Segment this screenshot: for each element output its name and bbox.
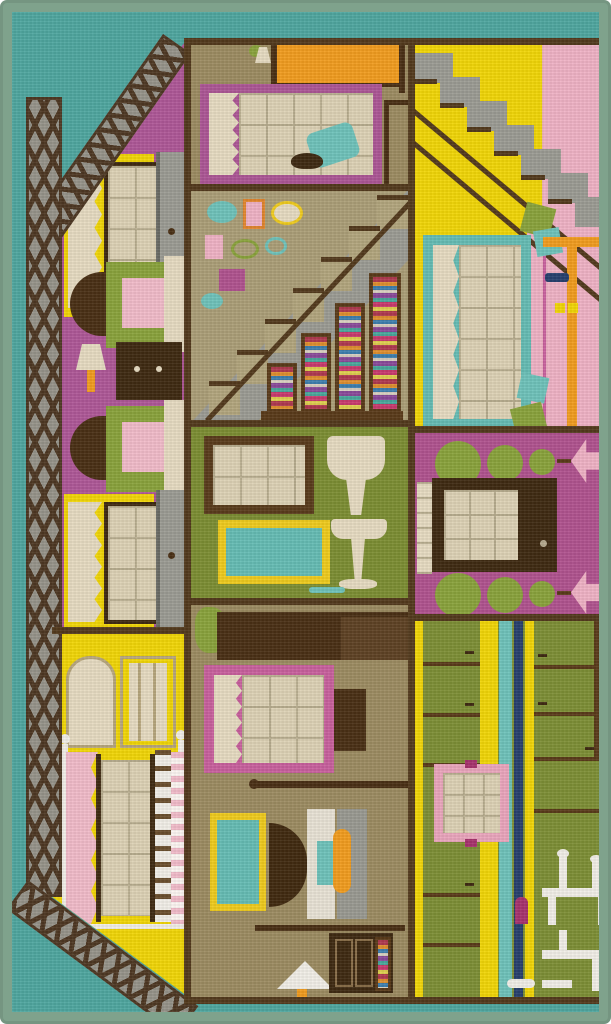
floor-living [415, 426, 599, 433]
tall-cabinet [334, 689, 366, 751]
dinette-chair-bar [542, 950, 599, 959]
book-stack [369, 273, 401, 413]
dresser-books [375, 937, 391, 991]
wall-left-column [184, 38, 191, 1004]
stair-tread [521, 175, 545, 180]
pet-silhouette [291, 153, 323, 169]
floor-left-divider [52, 627, 191, 634]
cabinet-divider [594, 621, 599, 757]
pink-urn [571, 439, 599, 483]
dressing-room [191, 605, 408, 997]
pedestal-stem [347, 537, 369, 581]
cabinet-handle [538, 702, 547, 705]
picture-oval [201, 293, 223, 309]
dinette-table-leg [598, 897, 599, 925]
entry-hall [415, 433, 599, 614]
floor-lamp-shade [277, 961, 333, 989]
pink-urn [571, 571, 599, 614]
dinette-chair-leg [592, 959, 599, 991]
living-window-pane [459, 245, 521, 419]
topiary-bush [487, 445, 523, 481]
cabinet-line [534, 665, 599, 669]
wall-stripe-navy [514, 621, 523, 997]
floor-bathroom [191, 598, 408, 605]
dresser-knob [168, 228, 175, 235]
water-puddle [309, 587, 345, 593]
topiary-bush [435, 573, 481, 614]
picture-oval [265, 237, 287, 255]
upper-landing [415, 45, 599, 426]
living-window-curtain [433, 245, 459, 419]
stair-step [293, 288, 324, 322]
cabinet-line [423, 713, 480, 717]
window-dot [465, 839, 477, 847]
bed-striped-blanket [171, 752, 185, 924]
vanity-mirror [217, 820, 259, 904]
door-knob [540, 540, 547, 547]
armchair-cushion [122, 422, 164, 472]
picture-frame [205, 235, 223, 259]
white-curve [507, 979, 535, 988]
roof-band-left [26, 97, 62, 897]
book-stack [267, 363, 297, 413]
lamp-shade [76, 344, 106, 370]
cabinet-handle [585, 747, 594, 750]
dinette-chair-leg [559, 930, 567, 950]
cabinet-handle [465, 703, 474, 706]
wall-stripe-yellow [525, 621, 534, 997]
stair-tread [548, 199, 572, 204]
picture-oval [271, 201, 303, 225]
wall-mid-column [408, 38, 415, 1004]
cabinet-handle [465, 651, 474, 654]
yellow-bow [555, 303, 565, 313]
kitchen-window-pane [443, 773, 500, 833]
sink-basin [327, 436, 385, 480]
stem [557, 591, 571, 595]
sidelight [417, 482, 432, 574]
headboard-shade [341, 617, 408, 660]
stair-tread [440, 103, 464, 108]
picture-oval [207, 201, 237, 223]
stair-tread [415, 79, 437, 84]
topiary-bush [529, 581, 555, 607]
floor-attic [191, 184, 408, 191]
window-pane [242, 675, 324, 763]
armchair-cushion [122, 278, 164, 328]
stair-step [321, 257, 352, 291]
wardrobe-left-door [66, 656, 116, 748]
cabinet-line [423, 943, 480, 947]
candlestick [559, 854, 567, 890]
picture-frame [243, 199, 265, 229]
dresser-door [355, 939, 373, 987]
play-rug [0, 0, 611, 1024]
floor-stair-hall [191, 420, 408, 427]
attic-window-curtain [209, 93, 239, 175]
hanging-rod [257, 781, 408, 788]
bookshelf-base [261, 411, 403, 420]
dinette-seat [542, 980, 572, 988]
nightstand-knob [156, 366, 162, 372]
picture-frame [219, 269, 245, 291]
door-window [444, 490, 518, 560]
table-pole [567, 237, 577, 426]
armchair-side [164, 256, 186, 352]
topiary-bush [529, 449, 555, 475]
teal-mirror [226, 528, 322, 576]
stair-tread [494, 151, 518, 156]
yellow-trim [415, 621, 423, 997]
desk-leg [384, 100, 389, 184]
dresser-door [335, 939, 353, 987]
cabinet-line [534, 712, 599, 716]
picture-oval [231, 239, 259, 259]
cabinet-line [534, 809, 599, 813]
side-table [70, 416, 106, 480]
cabinet-line [534, 757, 599, 761]
floor-entry [415, 614, 599, 621]
stair-hall [191, 191, 408, 420]
book-stack [335, 303, 365, 413]
floor-rod [255, 925, 405, 931]
window-curtain [68, 502, 102, 622]
nightstand-knob [134, 366, 140, 372]
vanity-stool [269, 823, 307, 907]
wall-top [184, 38, 599, 45]
kitchen [415, 621, 599, 997]
orange-bed [275, 45, 401, 85]
stair-step [575, 197, 599, 227]
bathroom [191, 427, 408, 598]
lamp-stem [87, 370, 95, 392]
armchair-side [164, 400, 186, 496]
magenta-bottle [515, 897, 528, 924]
window-pane [104, 502, 160, 624]
dinette-table-leg [548, 897, 556, 925]
dinette-table-top [542, 888, 599, 897]
candlestick [592, 860, 599, 890]
cabinet-handle [538, 654, 547, 657]
topiary-bush [487, 577, 523, 613]
cabinet-handle [465, 883, 474, 886]
stem [557, 459, 571, 463]
rug-face [12, 12, 599, 1012]
attic-bedroom [191, 45, 408, 184]
window-curtain [214, 675, 242, 763]
pedestal-base [339, 579, 377, 589]
cabinet-line [423, 893, 480, 897]
wardrobe-right-door [120, 656, 176, 748]
vanity-orange-bottle [333, 829, 351, 893]
navy-remote [545, 273, 569, 282]
cushion-teal [517, 372, 550, 403]
stair-tread [467, 127, 491, 132]
floor-lamp-stem [297, 989, 307, 997]
bed-ladder-rail [155, 750, 171, 922]
yellow-bow [568, 303, 578, 313]
bed-canopy [66, 752, 98, 924]
bed-quilt [101, 760, 151, 916]
nightstand [116, 342, 182, 400]
window-dot [465, 760, 477, 768]
pedestal-top [331, 519, 387, 539]
bathroom-window [204, 436, 314, 514]
book-stack [301, 333, 331, 413]
floor-bottom [184, 997, 599, 1004]
sink-pedestal [343, 479, 369, 515]
cabinet-line [423, 662, 480, 666]
dresser-knob [168, 552, 175, 559]
